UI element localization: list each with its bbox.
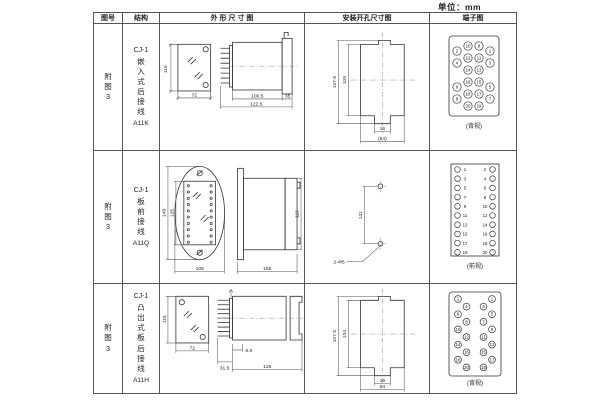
dim-body-length: 126 [263,364,272,370]
svg-text:18: 18 [455,357,460,362]
svg-text:7: 7 [482,319,485,324]
svg-text:5: 5 [488,84,491,89]
dimension-lines [347,186,382,261]
svg-text:6: 6 [483,186,486,191]
dim-front-width: 105 [196,266,205,272]
dim-inner-height: 104 [342,330,348,339]
dim-slot-width: 16 [380,126,386,132]
mounting-drawing-a11q: 131 2-Φ5 [305,151,429,284]
mounting-cell-a11q: 131 2-Φ5 [305,151,430,284]
header-outline: 外 形 尺 寸 图 [160,13,305,24]
model-label: CJ-1 [134,293,149,300]
svg-text:4: 4 [483,176,486,181]
terminal-cell-a11q: 12 34 56 78 910 1112 1314 1516 1718 1920… [430,151,516,284]
outline-cell-a11q: 149 125 105 115 156 [160,151,305,284]
svg-text:11: 11 [476,55,481,60]
svg-text:17: 17 [476,91,481,96]
dim-side-height: 115 [295,210,301,218]
dim-front-height: 115 [162,315,168,323]
svg-text:3: 3 [482,304,485,309]
mounting-holes [378,184,383,246]
svg-text:6: 6 [455,84,458,89]
structure-label: 嵌入式后接线 [137,57,146,118]
mounting-cell-a11k: 107.5 105 16 (64) [305,24,430,151]
dim-total-length: 122.5 [250,101,263,107]
outline-drawing-a11h: 115 72 9.5 31.5 126 [160,284,304,393]
svg-text:2: 2 [456,297,459,302]
svg-text:16: 16 [464,350,469,355]
svg-text:9: 9 [490,327,493,332]
dimension-lines [169,43,292,109]
svg-text:3: 3 [488,60,491,65]
dim-outer-width: (64) [378,136,387,142]
svg-text:11: 11 [481,335,486,340]
svg-text:1: 1 [463,167,466,172]
outline-drawing-a11q: 149 125 105 115 156 [160,151,304,284]
terminal-numbers: 12 34 56 78 910 1112 1314 1516 1718 1920 [462,167,487,255]
svg-text:18: 18 [482,241,487,246]
svg-text:11: 11 [462,213,467,218]
svg-text:2: 2 [483,167,486,172]
relay-front-view [178,44,211,91]
dim-outer-height: 149 [161,209,167,218]
spec-table: 图号 结构 外 形 尺 寸 图 安装开孔尺寸图 端子图 附图3 CJ-1 嵌入式… [93,12,517,394]
code-label: A11Q [133,240,149,247]
svg-text:20: 20 [482,250,487,255]
header-terminal: 端子图 [430,13,516,24]
outline-cell-a11h: 115 72 9.5 31.5 126 [160,284,305,393]
header-structure: 结构 [123,13,160,24]
dim-hole-spacing: 131 [358,211,364,220]
svg-text:8: 8 [465,319,468,324]
svg-text:16: 16 [482,232,487,237]
svg-text:19: 19 [476,103,481,108]
svg-text:13: 13 [462,222,467,227]
dim-slot-width: 16 [380,378,386,384]
mounting-drawing-a11k: 107.5 105 16 (64) [305,24,429,151]
figure-label: 附图3 [104,323,113,353]
terminal-cell-a11h: 21 43 65 87 109 1211 1413 1615 1817 2019… [430,284,516,393]
dim-side-length: 156 [263,266,272,272]
dim-inner-height: 125 [169,209,175,218]
dimension-lines [337,40,404,143]
code-label: A11K [133,120,148,127]
svg-text:2: 2 [455,48,458,53]
dim-outer-height: 107.5 [332,330,338,343]
dim-pin-offset: 9.5 [245,348,252,354]
svg-text:14: 14 [465,67,470,72]
svg-text:18: 18 [465,91,470,96]
svg-text:15: 15 [462,232,467,237]
figure-label: 附图3 [104,202,113,232]
dim-outer-width: 64 [380,384,386,390]
dim-flange-depth: 35 [285,93,291,99]
figure-cell-a11k: 附图3 [94,24,123,151]
svg-text:5: 5 [463,186,466,191]
code-label: A11H [133,377,149,384]
view-caption: (前视) [467,262,483,270]
svg-text:17: 17 [489,357,494,362]
view-caption: (背视) [466,122,482,130]
svg-text:8: 8 [455,96,458,101]
svg-text:8: 8 [483,195,486,200]
svg-text:10: 10 [482,204,487,209]
svg-text:3: 3 [463,176,466,181]
relay-side-view [221,32,293,94]
model-label: CJ-1 [134,47,149,54]
svg-text:15: 15 [476,79,481,84]
structure-cell-a11k: CJ-1 嵌入式后接线 A11K [123,24,160,151]
dim-pin-length: 31.5 [220,365,230,371]
svg-text:7: 7 [463,195,466,200]
terminal-pins-front [187,185,212,244]
svg-text:5: 5 [490,312,493,317]
model-label: CJ-1 [134,187,149,194]
svg-text:9: 9 [477,43,480,48]
svg-text:19: 19 [481,365,486,370]
mounting-cell-a11h: 107.5 104 16 64 [305,284,430,393]
dim-body-length: 100.5 [251,93,264,99]
terminal-diagram-a11k: 2 10 9 1 4 12 11 3 14 13 6 16 15 5 8 18 … [431,24,516,151]
svg-text:1: 1 [490,297,493,302]
outline-cell-a11k: 115 72 100.5 35 122.5 [160,24,305,151]
svg-text:17: 17 [462,241,467,246]
outline-drawing-a11k: 115 72 100.5 35 122.5 [160,24,304,151]
svg-text:7: 7 [488,96,491,101]
dimension-lines [337,296,404,391]
dim-inner-height: 105 [342,75,348,84]
svg-text:12: 12 [465,55,470,60]
mounting-drawing-a11h: 107.5 104 16 64 [305,284,429,393]
svg-text:13: 13 [489,342,494,347]
terminal-diagram-a11q: 12 34 56 78 910 1112 1314 1516 1718 1920… [431,151,516,284]
figure-label: 附图3 [104,72,113,102]
terminal-cell-a11k: 2 10 9 1 4 12 11 3 14 13 6 16 15 5 8 18 … [430,24,516,151]
svg-text:20: 20 [465,103,470,108]
dimension-lines [166,296,302,371]
hole-size-label: 2-Φ5 [334,260,345,266]
dim-front-width: 72 [192,92,198,98]
svg-text:20: 20 [464,365,469,370]
structure-label: 凸出式板后接线 [137,303,146,374]
svg-text:12: 12 [464,335,469,340]
terminal-circles [454,167,495,255]
dimension-lines [166,166,302,273]
svg-text:9: 9 [463,204,466,209]
structure-cell-a11h: CJ-1 凸出式板后接线 A11H [123,284,160,393]
relay-front-view [175,166,225,259]
structure-cell-a11q: CJ-1 板前接线 A11Q [123,151,160,284]
figure-cell-a11q: 附图3 [94,151,123,284]
svg-text:13: 13 [476,67,481,72]
svg-text:14: 14 [482,222,487,227]
svg-text:14: 14 [455,342,460,347]
svg-text:15: 15 [481,350,486,355]
svg-text:4: 4 [465,304,468,309]
dim-front-width: 72 [190,345,196,351]
svg-text:10: 10 [465,43,470,48]
view-caption: (背视) [467,379,483,387]
terminal-diagram-a11h: 21 43 65 87 109 1211 1413 1615 1817 2019… [431,284,516,393]
svg-text:16: 16 [465,79,470,84]
dim-front-height: 115 [163,64,169,72]
structure-label: 板前接线 [137,197,146,238]
header-mounting: 安装开孔尺寸图 [305,13,430,24]
svg-text:10: 10 [455,327,460,332]
dim-outer-height: 107.5 [332,75,338,88]
svg-text:4: 4 [455,60,458,65]
figure-cell-a11h: 附图3 [94,284,123,393]
relay-side-view [237,168,300,259]
cutout-profile [361,296,405,375]
svg-text:19: 19 [462,250,467,255]
svg-text:1: 1 [488,48,491,53]
header-figure: 图号 [94,13,123,24]
relay-front-view [176,296,209,343]
svg-text:6: 6 [456,312,459,317]
svg-text:12: 12 [482,213,487,218]
